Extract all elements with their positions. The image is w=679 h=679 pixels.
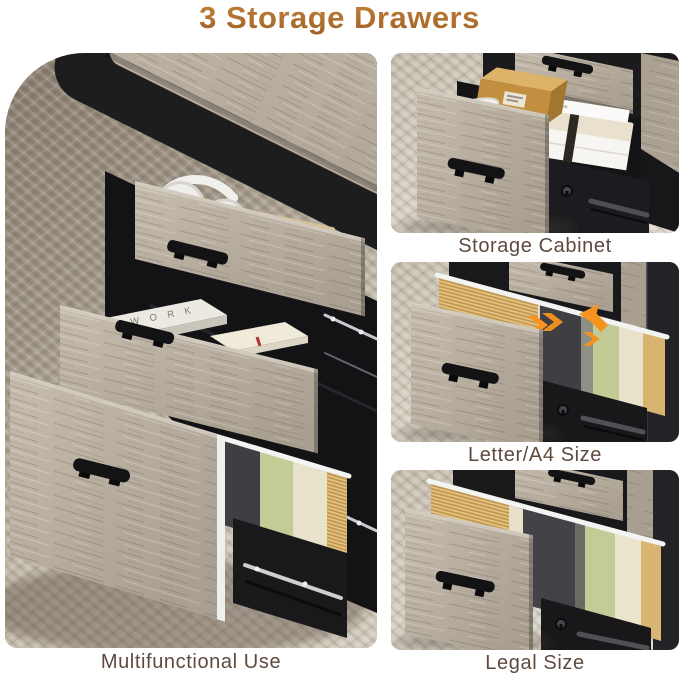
legal-size-illustration — [391, 470, 679, 650]
letter-a4-panel — [391, 262, 679, 442]
page-title: 3 Storage Drawers — [0, 0, 679, 40]
caption-legal-size: Legal Size — [391, 650, 679, 676]
caption-multifunctional-use: Multifunctional Use — [5, 648, 377, 676]
main-photo-panel: FIELD W O R K — [5, 53, 377, 648]
main-photo-illustration: FIELD W O R K — [5, 53, 377, 648]
caption-letter-a4-size: Letter/A4 Size — [391, 442, 679, 468]
product-image: 3 Storage Drawers — [0, 0, 679, 679]
letter-a4-illustration — [391, 262, 679, 442]
storage-cabinet-illustration — [391, 53, 679, 233]
caption-storage-cabinet: Storage Cabinet — [391, 233, 679, 259]
storage-cabinet-panel — [391, 53, 679, 233]
legal-size-panel — [391, 470, 679, 650]
